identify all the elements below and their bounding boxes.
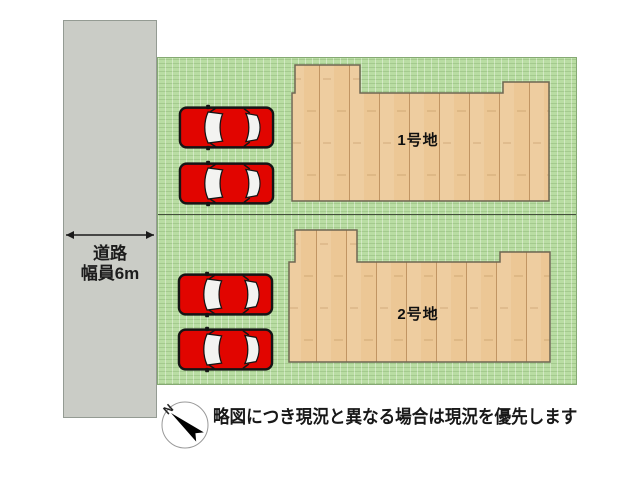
car-icon: [178, 160, 275, 207]
plot-boundary-line: [158, 214, 576, 215]
road-width-arrow-icon: [62, 228, 158, 242]
plot-map: 道路 幅員6m: [0, 0, 640, 480]
car-icon: [178, 104, 275, 151]
road-label-line2: 幅員6m: [81, 264, 140, 283]
road-label-line1: 道路: [93, 244, 127, 263]
disclaimer-text: 略図につき現況と異なる場合は現況を優先します: [213, 403, 577, 429]
car-icon: [177, 271, 274, 318]
car-icon: [177, 326, 274, 373]
building-2-footprint: [287, 228, 552, 364]
plot-1-label: 1号地: [363, 129, 473, 150]
north-arrow-icon: N: [160, 400, 210, 450]
road-label: 道路 幅員6m: [63, 244, 157, 284]
plot-2-label: 2号地: [363, 303, 473, 324]
road-area: [63, 20, 157, 418]
